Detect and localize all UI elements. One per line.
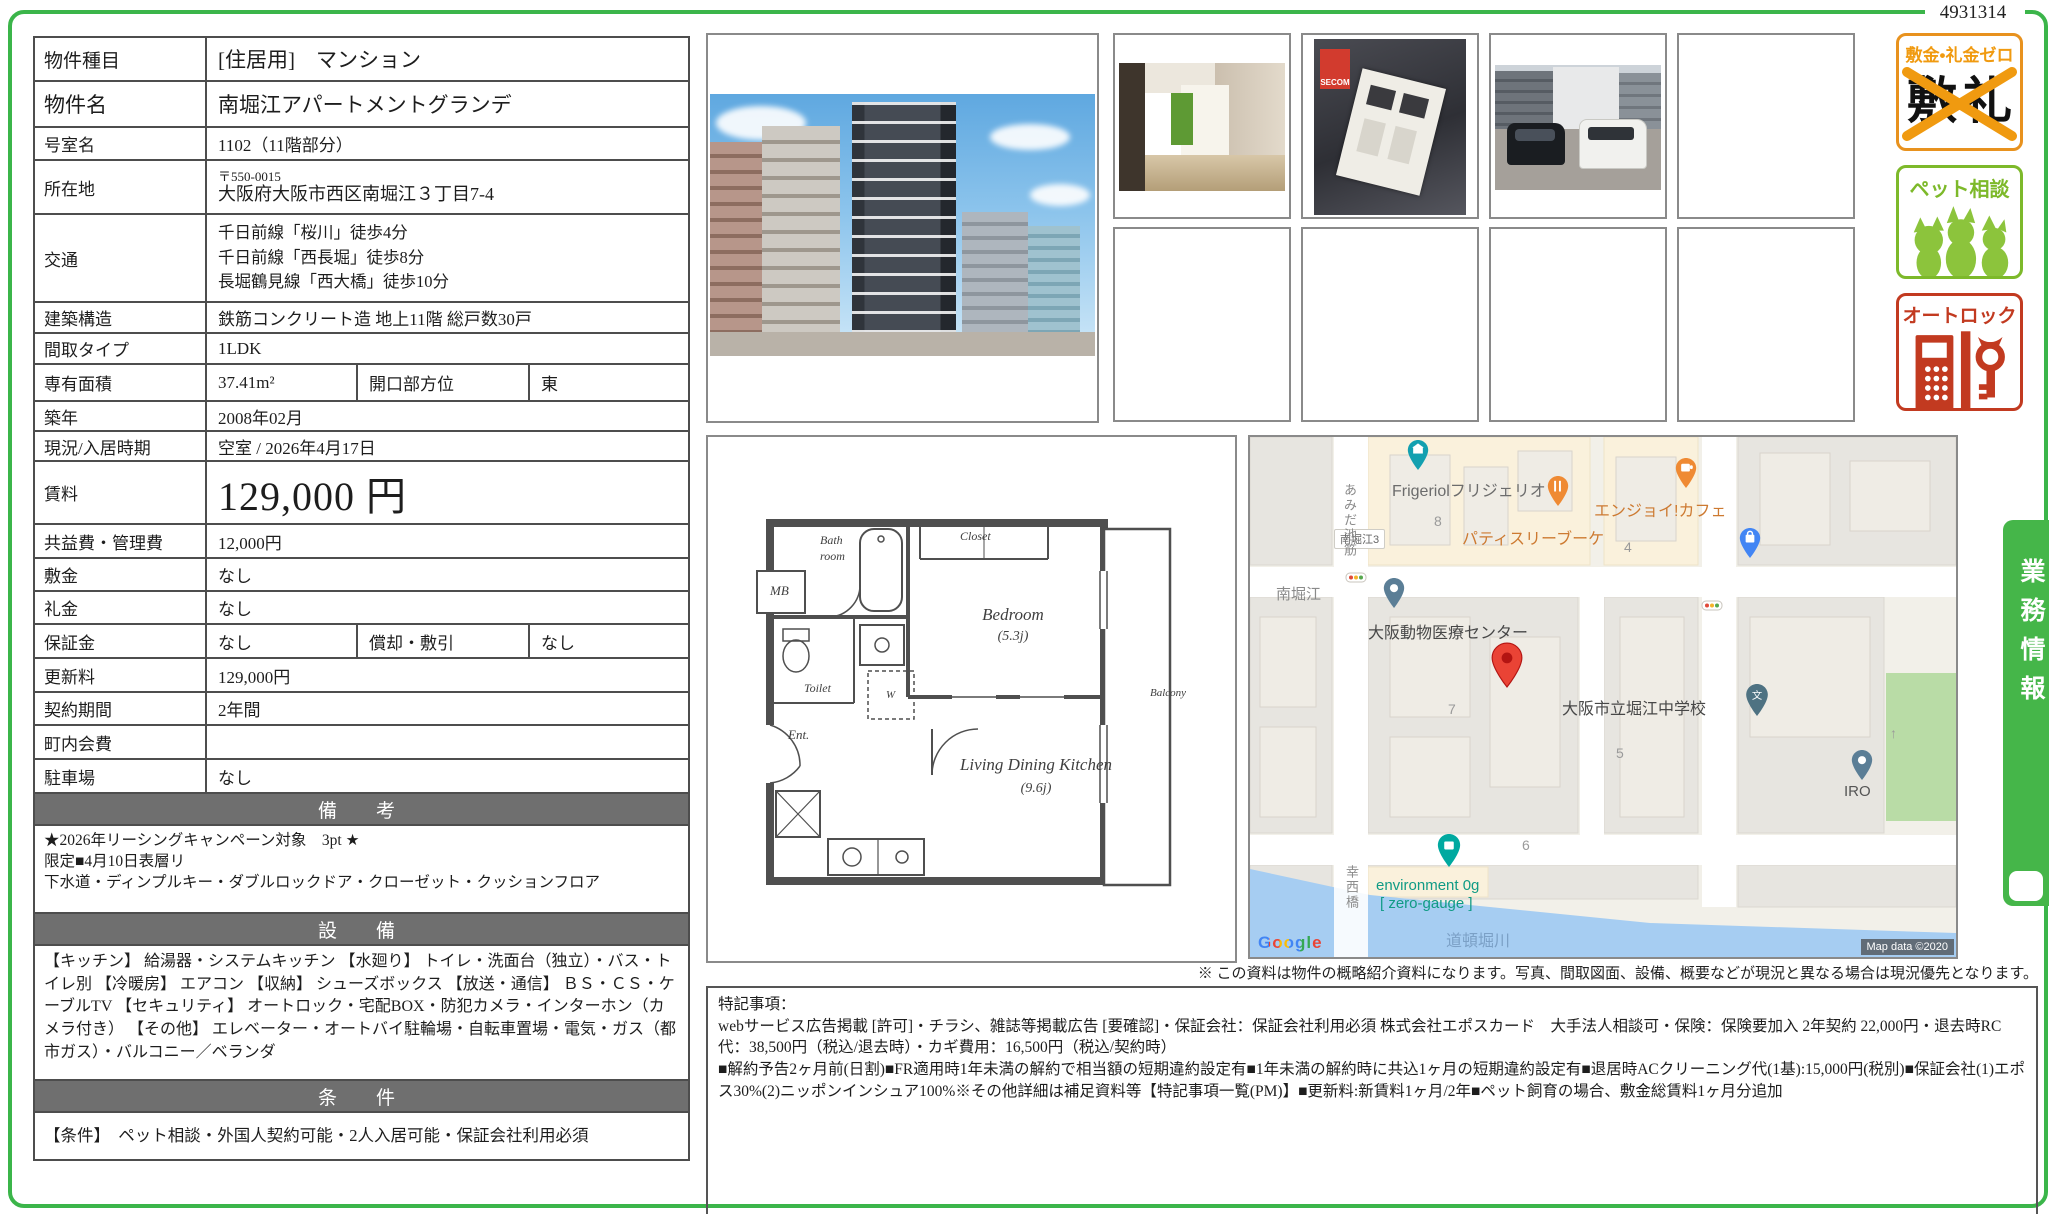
photo-hallway-box [1113, 33, 1291, 219]
floorplan-drawing [756, 513, 1192, 893]
access-line: 千日前線「桜川」徒歩4分 [218, 221, 408, 246]
street-building [1495, 71, 1553, 129]
property-location-pin-icon [1490, 641, 1524, 694]
photo-placeholder [1301, 227, 1479, 422]
table-row: 号室名 1102（11階部分） [35, 128, 688, 159]
row-label: 建築構造 [35, 303, 205, 332]
table-row: 保証金 なし 償却・敷引 なし [35, 625, 688, 657]
floorplan-label-ldk: Living Dining Kitchen [926, 755, 1146, 775]
equipment-content: 【キッチン】 給湯器・システムキッチン 【水廻り】 トイレ・洗面台（独立）・バス… [35, 946, 688, 1079]
map-label-river: 道頓堀川 [1446, 927, 1510, 951]
google-logo: Google [1258, 933, 1323, 953]
table-row: 物件名 南堀江アパートメントグランデ [35, 82, 688, 126]
table-row: 町内会費 [35, 726, 688, 758]
remarks-line: ★2026年リーシングキャンペーン対象 3pt ★ [44, 831, 679, 852]
museum-pin-icon [1406, 439, 1430, 476]
building-neighbor-left [710, 142, 762, 356]
map-label-cafe: エンジョイ!カフェ [1594, 497, 1726, 521]
address: 大阪府大阪市西区南堀江３丁目7-4 [218, 184, 494, 205]
floorplan-label-ldk-size: (9.6j) [926, 781, 1146, 797]
autolock-icon [1908, 331, 2012, 411]
badge-autolock: オートロック [1896, 293, 2023, 411]
remarks-content: ★2026年リーシングキャンペーン対象 3pt ★ 限定■4月10日表層リ 下水… [35, 826, 688, 912]
row-label: 物件名 [35, 82, 205, 126]
table-row: 賃料 129,000 円 [35, 462, 688, 523]
row-value: 空室 / 2026年4月17日 [207, 432, 688, 460]
map-label-env2: [ zero-gauge ] [1380, 895, 1473, 912]
car-window [1515, 129, 1555, 141]
special-notes-para1: webサービス広告掲載 [許可]・チラシ、雑誌等掲載広告 [要確認]・保証会社：… [718, 1016, 2026, 1059]
table-row: 間取タイプ 1LDK [35, 334, 688, 363]
tab-notch [2009, 871, 2043, 901]
building-subject [852, 102, 956, 356]
row-label: 駐車場 [35, 760, 205, 792]
special-notes-para2: ■解約予告2ヶ月前(日割)■FR適用時1年未満の解約で相当額の短期違約設定有■1… [718, 1059, 2026, 1102]
photo-placeholder [1677, 33, 1855, 219]
property-sheet: 4931314 物件種目 [住居用] マンション 物件名 南堀江アパートメントグ… [0, 0, 2056, 1214]
access-line: 千日前線「西長堀」徒歩8分 [218, 246, 424, 271]
map-label-block7: 7 [1448, 701, 1456, 717]
intercom-keypad [1356, 118, 1386, 156]
table-row: 交通 千日前線「桜川」徒歩4分 千日前線「西長堀」徒歩8分 長堀鶴見線「西大橋」… [35, 215, 688, 301]
road [710, 332, 1095, 356]
table-row: 駐車場 なし [35, 760, 688, 792]
map-label-iro: IRO [1844, 783, 1871, 800]
conditions-header: 条 件 [35, 1081, 688, 1111]
row-value: 129,000円 [207, 659, 688, 691]
photo-street-box [1489, 33, 1667, 219]
row-label: 敷金 [35, 559, 205, 590]
badge-pets-title: ペット相談 [1899, 173, 2020, 202]
conditions-content: 【条件】 ペット相談・外国人契約可能・2人入居可能・保証会社利用必須 [35, 1113, 688, 1159]
row-label: 賃料 [35, 462, 205, 523]
row-value: 南堀江アパートメントグランデ [207, 82, 688, 126]
map-label-frigeriol: Frigeriolフリジェリオ [1392, 477, 1546, 501]
row-value: 37.41m² [207, 365, 356, 400]
row-label-2: 開口部方位 [358, 365, 528, 400]
document-id: 4931314 [1925, 2, 2021, 24]
row-label: 更新料 [35, 659, 205, 691]
building-photo-image [710, 94, 1095, 356]
photo-placeholder [1113, 227, 1291, 422]
row-value: [住居用] マンション [207, 38, 688, 80]
row-label: 号室名 [35, 128, 205, 159]
intercom-screen [1399, 93, 1429, 119]
floorplan-label-bath: Bath [820, 533, 843, 548]
map-label-block4: 4 [1624, 539, 1632, 555]
row-value-2: 東 [530, 365, 688, 400]
badge-no-deposit-title: 敷金•礼金ゼロ [1899, 41, 2020, 66]
map-attribution: Map data ©2020 [1861, 939, 1955, 955]
table-row: 建築構造 鉄筋コンクリート造 地上11階 総戸数30戸 [35, 303, 688, 332]
row-value: 1102（11階部分） [207, 128, 688, 159]
intercom-photo-image: SECOM [1314, 39, 1466, 215]
row-value: 〒550-0015 大阪府大阪市西区南堀江３丁目7-4 [207, 161, 688, 213]
env-pin-icon [1436, 833, 1462, 873]
row-label: 専有面積 [35, 365, 205, 400]
map-box: 文 Frigeriolフリジェリオ 8 パティスリーブーケ エンジョイ!カフェ … [1248, 435, 1958, 959]
photo-placeholder [1677, 227, 1855, 422]
postal-code: 〒550-0015 [218, 170, 281, 184]
hallway-photo-image [1119, 63, 1285, 191]
row-value: 1LDK [207, 334, 688, 363]
disclaimer-note: ※ この資料は物件の概略紹介資料になります。写真、間取図面、設備、概要などが現況… [706, 962, 2038, 983]
school-mark: 文 [1752, 689, 1762, 702]
map-label-amidasuji: あみだ池筋 [1340, 483, 1359, 558]
pets-icon [1908, 204, 2012, 279]
iro-pin-icon [1850, 749, 1874, 786]
restaurant-pin-icon [1546, 475, 1570, 512]
row-value: 千日前線「桜川」徒歩4分 千日前線「西長堀」徒歩8分 長堀鶴見線「西大橋」徒歩1… [207, 215, 688, 301]
badge-no-deposit-kanji: 敷 礼 [1899, 66, 2020, 144]
map-label-school: 大阪市立堀江中学校 [1562, 695, 1706, 719]
cross-out-icon [1899, 66, 2020, 144]
map-label-block8: 8 [1434, 513, 1442, 529]
row-value: なし [207, 592, 688, 623]
map-label-patisserie: パティスリーブーケ [1462, 525, 1604, 549]
remarks-header: 備 考 [35, 794, 688, 824]
map-oneway-arrow: ↑ [1890, 725, 1897, 741]
table-row: 礼金 なし [35, 592, 688, 623]
badge-no-deposit: 敷金•礼金ゼロ 敷 礼 [1896, 33, 2023, 151]
row-value: 12,000円 [207, 525, 688, 557]
row-label: 物件種目 [35, 38, 205, 80]
photo-main-exterior [706, 33, 1099, 423]
table-row: 物件種目 [住居用] マンション [35, 38, 688, 80]
street-photo-image [1495, 65, 1661, 190]
hallway-wall [1119, 63, 1145, 191]
floorplan-label-bath2: room [820, 549, 845, 564]
special-notes-title: 特記事項： [718, 994, 2026, 1016]
intercom-screen [1366, 85, 1396, 111]
map-label-hospital: 大阪動物医療センター [1368, 619, 1528, 643]
map-label-env1: environment 0g [1376, 877, 1479, 894]
floorplan-label-bedroom: Bedroom [958, 605, 1068, 625]
row-value: 2年間 [207, 693, 688, 724]
table-row: 現況/入居時期 空室 / 2026年4月17日 [35, 432, 688, 460]
car-dark [1507, 123, 1565, 165]
property-table: 物件種目 [住居用] マンション 物件名 南堀江アパートメントグランデ 号室名 … [33, 36, 690, 1161]
map-label-bridge: 幸西橋 [1342, 865, 1361, 910]
map-label-minamihorie: 南堀江 [1276, 583, 1321, 604]
floorplan-label-washer: W [886, 689, 895, 701]
intercom-keypad [1387, 126, 1417, 164]
row-label: 共益費・管理費 [35, 525, 205, 557]
building-neighbor [762, 126, 840, 356]
row-label-2: 償却・敷引 [358, 625, 528, 657]
row-value: なし [207, 760, 688, 792]
row-value: なし [207, 625, 356, 657]
business-info-tab-label: 業務情報 [2013, 558, 2049, 714]
row-label: 保証金 [35, 625, 205, 657]
remarks-line: 限定■4月10日表層リ [44, 852, 679, 873]
floorplan-label-balcony: Balcony [1150, 687, 1186, 699]
hospital-pin-icon [1382, 577, 1406, 614]
table-row: 更新料 129,000円 [35, 659, 688, 691]
row-label: 契約期間 [35, 693, 205, 724]
photo-intercom-box: SECOM [1301, 33, 1479, 219]
row-value-2: なし [530, 625, 688, 657]
store-pin-icon [1738, 527, 1762, 564]
business-info-tab: 業務情報 [2003, 520, 2049, 906]
cloud [1030, 184, 1090, 206]
table-row: 専有面積 37.41m² 開口部方位 東 [35, 365, 688, 400]
access-line: 長堀鶴見線「西大橋」徒歩10分 [218, 270, 449, 295]
badge-pets-ok: ペット相談 [1896, 165, 2023, 279]
car-window [1588, 127, 1634, 140]
table-row: 契約期間 2年間 [35, 693, 688, 724]
row-value: なし [207, 559, 688, 590]
remarks-line: 下水道・ディンプルキー・ダブルロックドア・クローゼット・クッションフロア [44, 873, 679, 894]
floorplan-label-bedroom-size: (5.3j) [958, 629, 1068, 645]
row-label: 所在地 [35, 161, 205, 213]
hallway-plant-wall [1171, 93, 1193, 145]
row-label: 町内会費 [35, 726, 205, 758]
table-row: 築年 2008年02月 [35, 402, 688, 430]
table-row: 所在地 〒550-0015 大阪府大阪市西区南堀江３丁目7-4 [35, 161, 688, 213]
floorplan-label-closet: Closet [960, 529, 991, 544]
table-row: 敷金 なし [35, 559, 688, 590]
floorplan-label-entrance: Ent. [788, 727, 809, 743]
car-white [1579, 119, 1647, 169]
row-value: 鉄筋コンクリート造 地上11階 総戸数30戸 [207, 303, 688, 332]
floorplan-label-toilet: Toilet [804, 681, 831, 696]
floorplan-label-mb: MB [770, 583, 789, 599]
cloud [990, 124, 1070, 150]
cafe-pin-icon [1674, 457, 1698, 494]
school-pin-icon: 文 [1744, 683, 1770, 722]
row-label: 礼金 [35, 592, 205, 623]
badge-autolock-title: オートロック [1899, 301, 2020, 328]
table-row: 共益費・管理費 12,000円 [35, 525, 688, 557]
hallway-floor [1145, 155, 1285, 191]
equipment-header: 設 備 [35, 914, 688, 944]
row-label: 現況/入居時期 [35, 432, 205, 460]
secom-sticker: SECOM [1320, 49, 1350, 89]
row-label: 交通 [35, 215, 205, 301]
floorplan-box: MB Bath room Closet Bedroom (5.3j) Toile… [706, 435, 1237, 963]
row-value [207, 726, 688, 758]
row-label: 間取タイプ [35, 334, 205, 363]
photo-placeholder [1489, 227, 1667, 422]
row-label: 築年 [35, 402, 205, 430]
row-value: 2008年02月 [207, 402, 688, 430]
map-label-block6: 6 [1522, 837, 1530, 853]
rent-value: 129,000 円 [207, 462, 688, 523]
map-label-block5: 5 [1616, 745, 1624, 761]
special-notes-box: 特記事項： webサービス広告掲載 [許可]・チラシ、雑誌等掲載広告 [要確認]… [706, 986, 2038, 1214]
